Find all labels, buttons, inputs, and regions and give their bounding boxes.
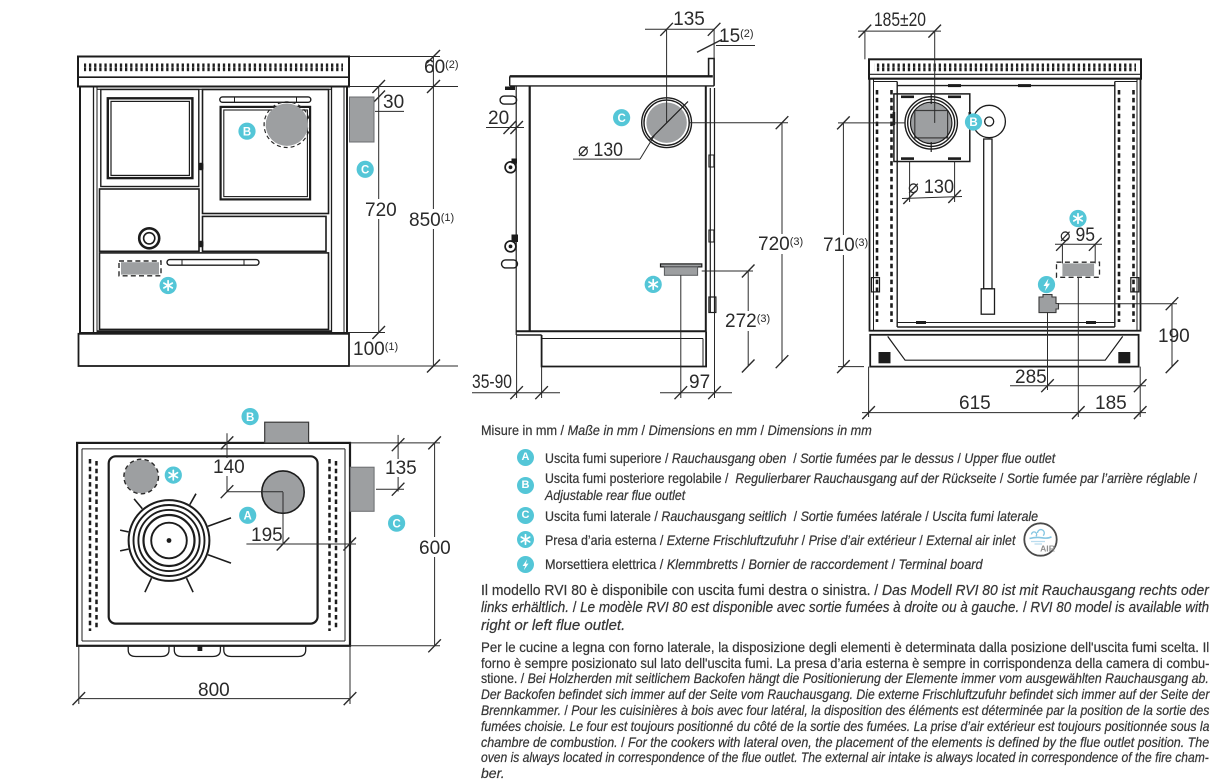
svg-text:B: B xyxy=(246,412,254,424)
svg-text:⌀ 130: ⌀ 130 xyxy=(578,140,623,161)
svg-text:800: 800 xyxy=(198,680,230,701)
svg-text:97: 97 xyxy=(689,372,710,393)
svg-text:185±20: 185±20 xyxy=(874,10,926,31)
svg-text:C: C xyxy=(361,165,369,177)
svg-text:135: 135 xyxy=(385,458,417,479)
svg-text:B: B xyxy=(969,117,977,129)
svg-text:720: 720 xyxy=(365,200,397,221)
svg-text:20: 20 xyxy=(488,108,509,129)
svg-text:100(1): 100(1) xyxy=(353,339,398,360)
svg-text:135: 135 xyxy=(673,9,705,30)
svg-text:285: 285 xyxy=(1015,367,1047,388)
svg-text:C: C xyxy=(392,518,400,530)
svg-text:15(2): 15(2) xyxy=(719,26,754,47)
svg-text:C: C xyxy=(617,113,625,125)
svg-text:30: 30 xyxy=(383,92,404,113)
svg-text:600: 600 xyxy=(419,538,451,559)
svg-text:B: B xyxy=(243,126,251,138)
svg-text:AIR: AIR xyxy=(1040,544,1056,554)
svg-text:615: 615 xyxy=(959,393,991,414)
svg-text:140: 140 xyxy=(213,457,245,478)
svg-text:35-90: 35-90 xyxy=(472,372,512,393)
svg-text:A: A xyxy=(244,511,252,523)
svg-text:185: 185 xyxy=(1095,393,1127,414)
svg-text:60(2): 60(2) xyxy=(424,57,459,78)
svg-text:⌀ 130: ⌀ 130 xyxy=(908,177,954,198)
svg-text:195: 195 xyxy=(251,525,283,546)
svg-text:⌀ 95: ⌀ 95 xyxy=(1060,225,1095,246)
svg-text:190: 190 xyxy=(1158,326,1190,347)
